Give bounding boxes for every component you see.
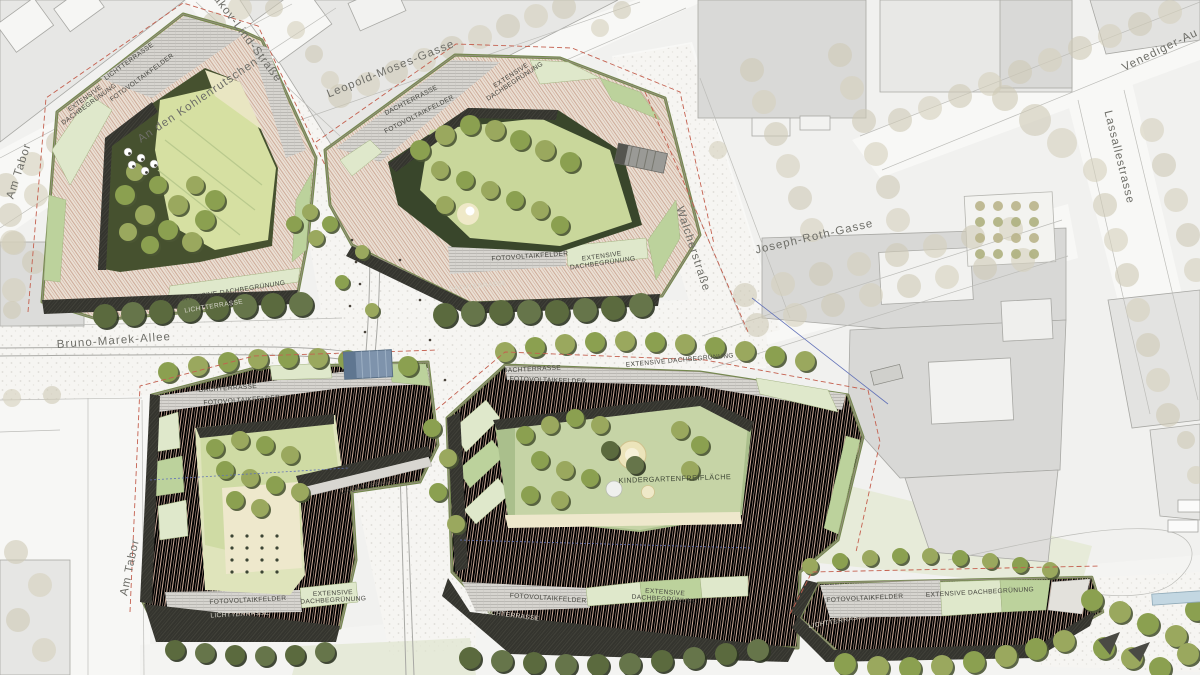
site-plan-svg: An den Kohlenrutschen Am Tabor Jakov-Lin… <box>0 0 1200 675</box>
tram-station-canopy <box>343 350 392 379</box>
site-plan: An den Kohlenrutschen Am Tabor Jakov-Lin… <box>0 0 1200 675</box>
